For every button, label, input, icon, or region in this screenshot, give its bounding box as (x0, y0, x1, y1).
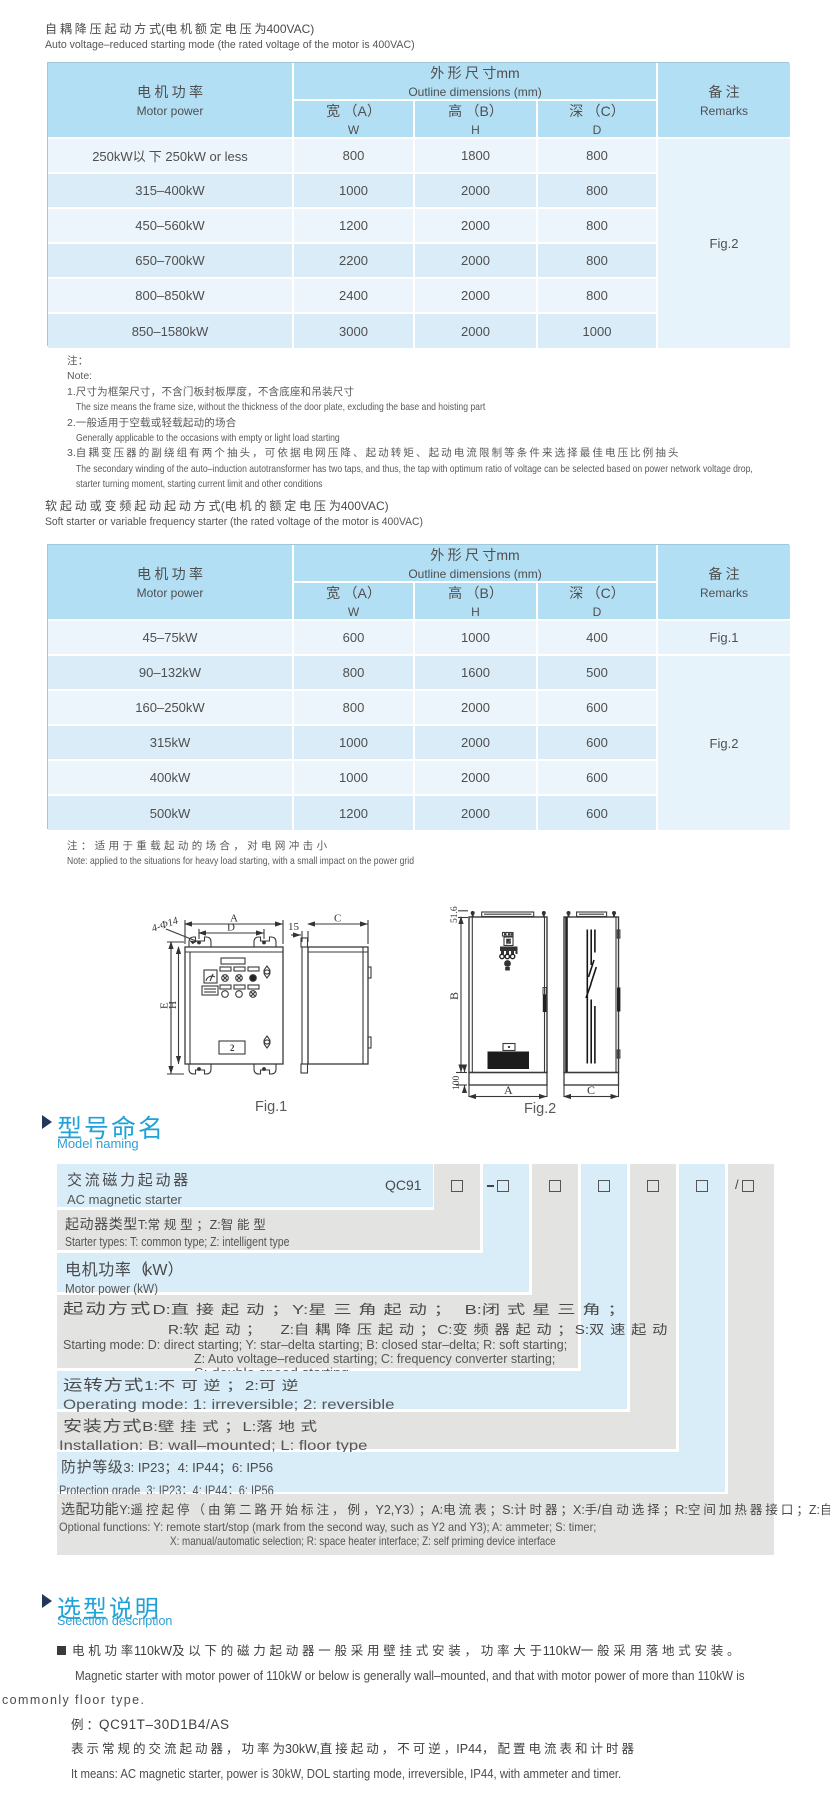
svg-text:A: A (504, 1083, 513, 1097)
svg-text:B: B (447, 992, 461, 1000)
svg-text:H: H (167, 1001, 179, 1009)
svg-text:C: C (587, 1083, 595, 1097)
svg-text:15: 15 (288, 921, 300, 933)
svg-text:4-Φ14: 4-Φ14 (150, 915, 180, 935)
svg-text:Fig.2: Fig.2 (524, 1101, 556, 1117)
svg-text:2: 2 (230, 1043, 235, 1053)
svg-text:C: C (334, 913, 341, 925)
svg-text:D: D (227, 922, 235, 934)
svg-text:100: 100 (452, 1076, 462, 1091)
svg-text:51.6: 51.6 (450, 906, 460, 923)
